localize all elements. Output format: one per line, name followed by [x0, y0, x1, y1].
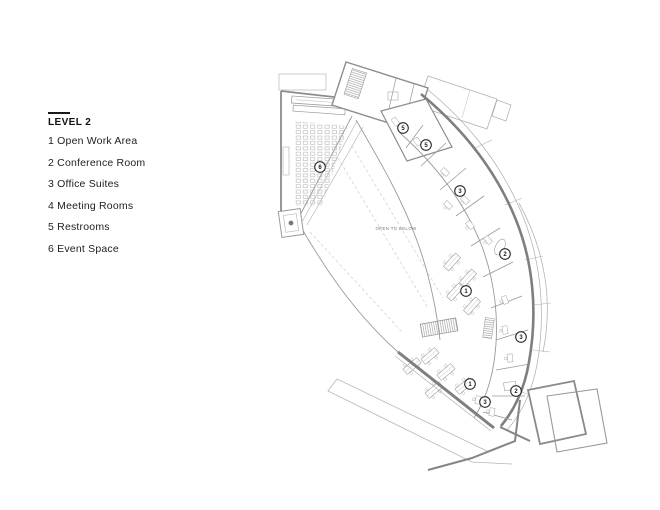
room-marker: 3 — [516, 332, 527, 343]
room-markers: 6553213132 — [315, 123, 527, 408]
room-marker: 1 — [461, 286, 472, 297]
office-desks — [438, 167, 512, 416]
room-marker: 3 — [480, 397, 491, 408]
room-marker: 2 — [500, 249, 511, 260]
event-space — [281, 91, 358, 220]
room-marker: 1 — [465, 379, 476, 390]
open-work-areas — [401, 251, 494, 401]
room-band-inner-wall — [400, 133, 496, 418]
room-marker: 5 — [421, 140, 432, 151]
site-ticks — [475, 140, 551, 398]
restrooms — [381, 99, 452, 161]
shelving — [483, 318, 495, 339]
elevator-core — [278, 209, 303, 238]
stair-hatch — [420, 318, 458, 337]
annex-block — [528, 381, 586, 444]
bottom-structures — [395, 352, 607, 470]
room-marker: 6 — [315, 162, 326, 173]
room-marker: 3 — [455, 186, 466, 197]
open-to-below-label: OPEN TO BELOW — [375, 226, 417, 231]
atrium-lower-edge — [298, 222, 398, 352]
room-marker: 2 — [511, 386, 522, 397]
room-marker: 5 — [398, 123, 409, 134]
floor-plan-drawing: OPEN TO BELOW — [0, 0, 660, 510]
room-partitions — [421, 143, 530, 420]
bottom-wall — [398, 352, 494, 428]
